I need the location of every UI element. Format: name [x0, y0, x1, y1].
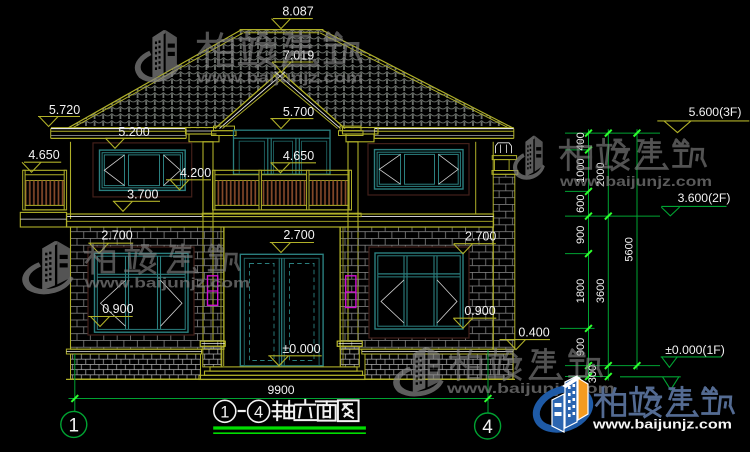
svg-text:www.baijunjz.com: www.baijunjz.com [84, 276, 250, 291]
svg-text:1: 1 [220, 403, 229, 421]
svg-text:2.700: 2.700 [283, 228, 314, 242]
svg-text:4: 4 [482, 417, 493, 438]
svg-text:5.600(3F): 5.600(3F) [689, 105, 742, 119]
svg-text:600: 600 [575, 195, 587, 213]
svg-text:5.720: 5.720 [49, 103, 80, 117]
svg-text:1: 1 [69, 416, 80, 437]
svg-text:±0.000(1F): ±0.000(1F) [665, 343, 725, 357]
svg-text:www.baijunjz.com: www.baijunjz.com [196, 71, 363, 87]
svg-text:0.900: 0.900 [464, 304, 495, 318]
svg-text:www.baijunjz.com: www.baijunjz.com [559, 174, 712, 189]
svg-text:±0.000: ±0.000 [282, 342, 320, 356]
svg-text:4.650: 4.650 [283, 149, 314, 163]
svg-text:0.900: 0.900 [102, 302, 133, 316]
svg-text:4: 4 [254, 403, 263, 421]
svg-text:3.700: 3.700 [127, 188, 158, 202]
svg-text:5.200: 5.200 [118, 125, 149, 139]
svg-text:www.baijunjz.com: www.baijunjz.com [592, 418, 732, 432]
svg-text:0.400: 0.400 [518, 326, 549, 340]
svg-text:2.700: 2.700 [465, 229, 496, 243]
svg-text:4.650: 4.650 [28, 148, 59, 162]
svg-text:3.600(2F): 3.600(2F) [678, 191, 731, 205]
svg-text:900: 900 [575, 226, 587, 244]
svg-text:5.700: 5.700 [283, 105, 314, 119]
svg-text:1800: 1800 [575, 279, 587, 303]
svg-text:4.200: 4.200 [180, 166, 211, 180]
svg-text:5600: 5600 [624, 237, 636, 261]
svg-text:2.700: 2.700 [101, 229, 132, 243]
svg-text:8.087: 8.087 [282, 5, 313, 19]
svg-text:3600: 3600 [595, 279, 607, 303]
svg-text:9900: 9900 [267, 383, 294, 397]
